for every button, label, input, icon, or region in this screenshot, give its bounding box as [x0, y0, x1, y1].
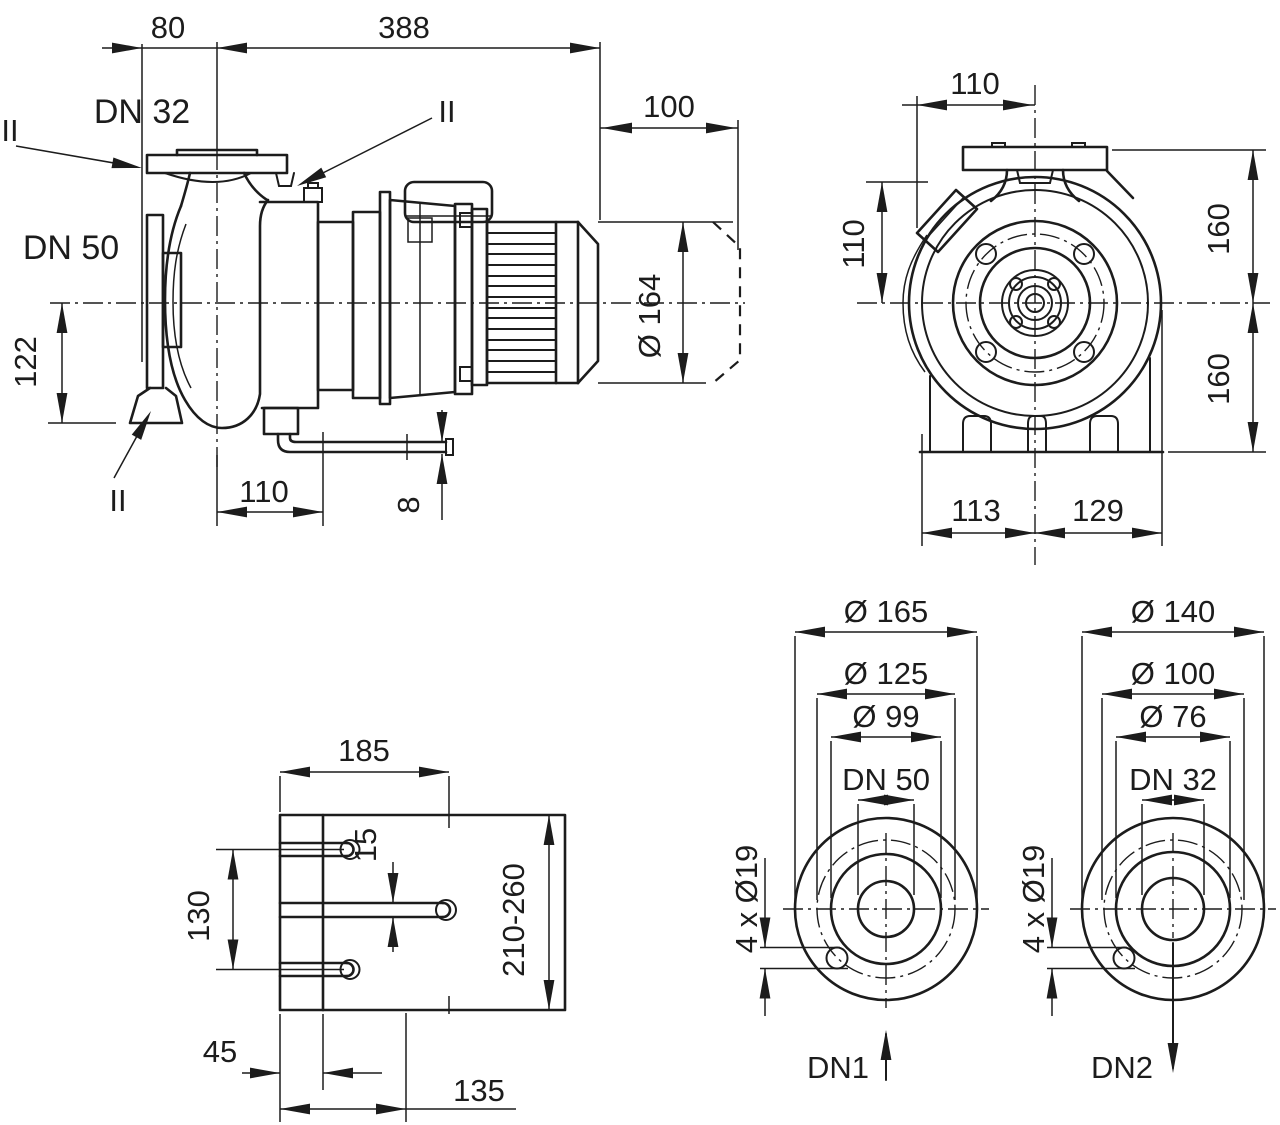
dn2-dia-outer: Ø 140	[1131, 594, 1215, 629]
dim-129: 129	[1072, 493, 1124, 528]
dn2-nominal: DN 32	[1129, 762, 1217, 797]
base-plate-view: 185 15 130 210-260 45 135	[181, 733, 565, 1122]
pump-dimension-drawing: 80 388 100 DN 32 DN 50 II II II	[0, 0, 1280, 1125]
label-dn32: DN 32	[94, 93, 190, 131]
flange-view-dn1: Ø 165 Ø 125 Ø 99 DN 50 4 x Ø19 DN1	[729, 594, 989, 1085]
dim-388: 388	[378, 10, 430, 45]
label-dn50: DN 50	[23, 229, 119, 267]
side-view: 80 388 100 DN 32 DN 50 II II II	[1, 10, 745, 526]
dim-160-lower: 160	[1201, 353, 1236, 405]
dn1-dia-bolt-circle: Ø 125	[844, 656, 928, 691]
dim-15: 15	[348, 828, 383, 862]
flange-view-dn2: Ø 140 Ø 100 Ø 76 DN 32 4 x Ø19 DN2	[1016, 594, 1276, 1085]
section-mark-1: II	[1, 113, 18, 148]
technical-drawing: 80 388 100 DN 32 DN 50 II II II	[0, 0, 1280, 1125]
dn2-port-label: DN2	[1091, 1050, 1153, 1085]
dn1-bolt-hole	[827, 948, 848, 969]
dim-110-left: 110	[836, 219, 871, 268]
dim-135: 135	[453, 1073, 505, 1108]
dim-130: 130	[181, 890, 216, 942]
dn2-bolt-holes: 4 x Ø19	[1016, 845, 1051, 954]
dn2-dia-face: Ø 76	[1139, 699, 1206, 734]
dim-113: 113	[951, 493, 1000, 528]
dn1-dia-outer: Ø 165	[844, 594, 928, 629]
dim-100: 100	[643, 89, 695, 124]
dn1-bolt-holes: 4 x Ø19	[729, 845, 764, 954]
terminal-box-front	[917, 190, 977, 252]
dn1-dia-face: Ø 99	[852, 699, 919, 734]
dn1-port-label: DN1	[807, 1050, 869, 1085]
section-mark-2: II	[438, 94, 455, 129]
lantern	[390, 200, 455, 398]
dim-185: 185	[338, 733, 390, 768]
dim-110-drain: 110	[239, 474, 288, 509]
vent-plug	[304, 188, 322, 202]
dn1-nominal: DN 50	[842, 762, 930, 797]
dim-motor-diameter: Ø 164	[632, 274, 667, 358]
front-view: 110 110 160 160 113 129	[836, 66, 1270, 565]
drain-pipe	[278, 434, 453, 460]
dim-110-top: 110	[950, 66, 999, 101]
section-mark-3: II	[109, 483, 126, 518]
dn2-dia-bolt-circle: Ø 100	[1131, 656, 1215, 691]
dim-122: 122	[8, 336, 43, 388]
dim-8: 8	[391, 496, 426, 513]
dn2-bolt-hole	[1114, 948, 1135, 969]
dim-160-upper: 160	[1201, 203, 1236, 255]
dim-45: 45	[203, 1034, 237, 1069]
dim-80: 80	[151, 10, 185, 45]
dim-210-260: 210-260	[496, 863, 531, 977]
